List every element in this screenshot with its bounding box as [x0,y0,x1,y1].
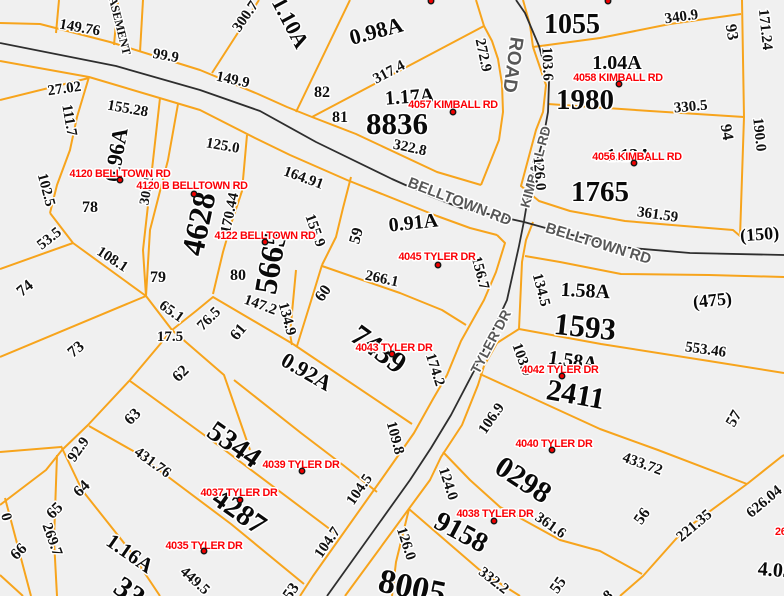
svg-text:1.04A: 1.04A [592,52,642,74]
svg-text:1980: 1980 [556,84,614,116]
svg-text:4120 B BELLTOWN RD: 4120 B BELLTOWN RD [136,180,248,192]
svg-text:79: 79 [150,269,166,286]
svg-text:103.6: 103.6 [538,47,555,82]
svg-text:126.0: 126.0 [530,156,549,191]
svg-text:4056 KIMBALL RD: 4056 KIMBALL RD [592,151,682,163]
svg-text:93: 93 [722,23,742,42]
svg-text:1055: 1055 [544,9,600,40]
svg-text:26: 26 [775,526,784,538]
svg-text:(150): (150) [739,223,779,247]
svg-text:1.58A: 1.58A [560,279,611,304]
svg-text:81: 81 [332,109,348,126]
svg-text:94: 94 [717,123,737,142]
svg-text:80: 80 [230,267,246,284]
svg-text:1593: 1593 [552,306,617,347]
svg-text:78: 78 [82,199,98,216]
svg-text:330.5: 330.5 [673,98,708,117]
svg-text:1765: 1765 [571,176,629,208]
svg-text:8836: 8836 [366,106,428,141]
svg-text:82: 82 [314,84,330,101]
svg-text:4045 TYLER DR: 4045 TYLER DR [398,251,476,263]
svg-text:17.5: 17.5 [157,329,183,345]
